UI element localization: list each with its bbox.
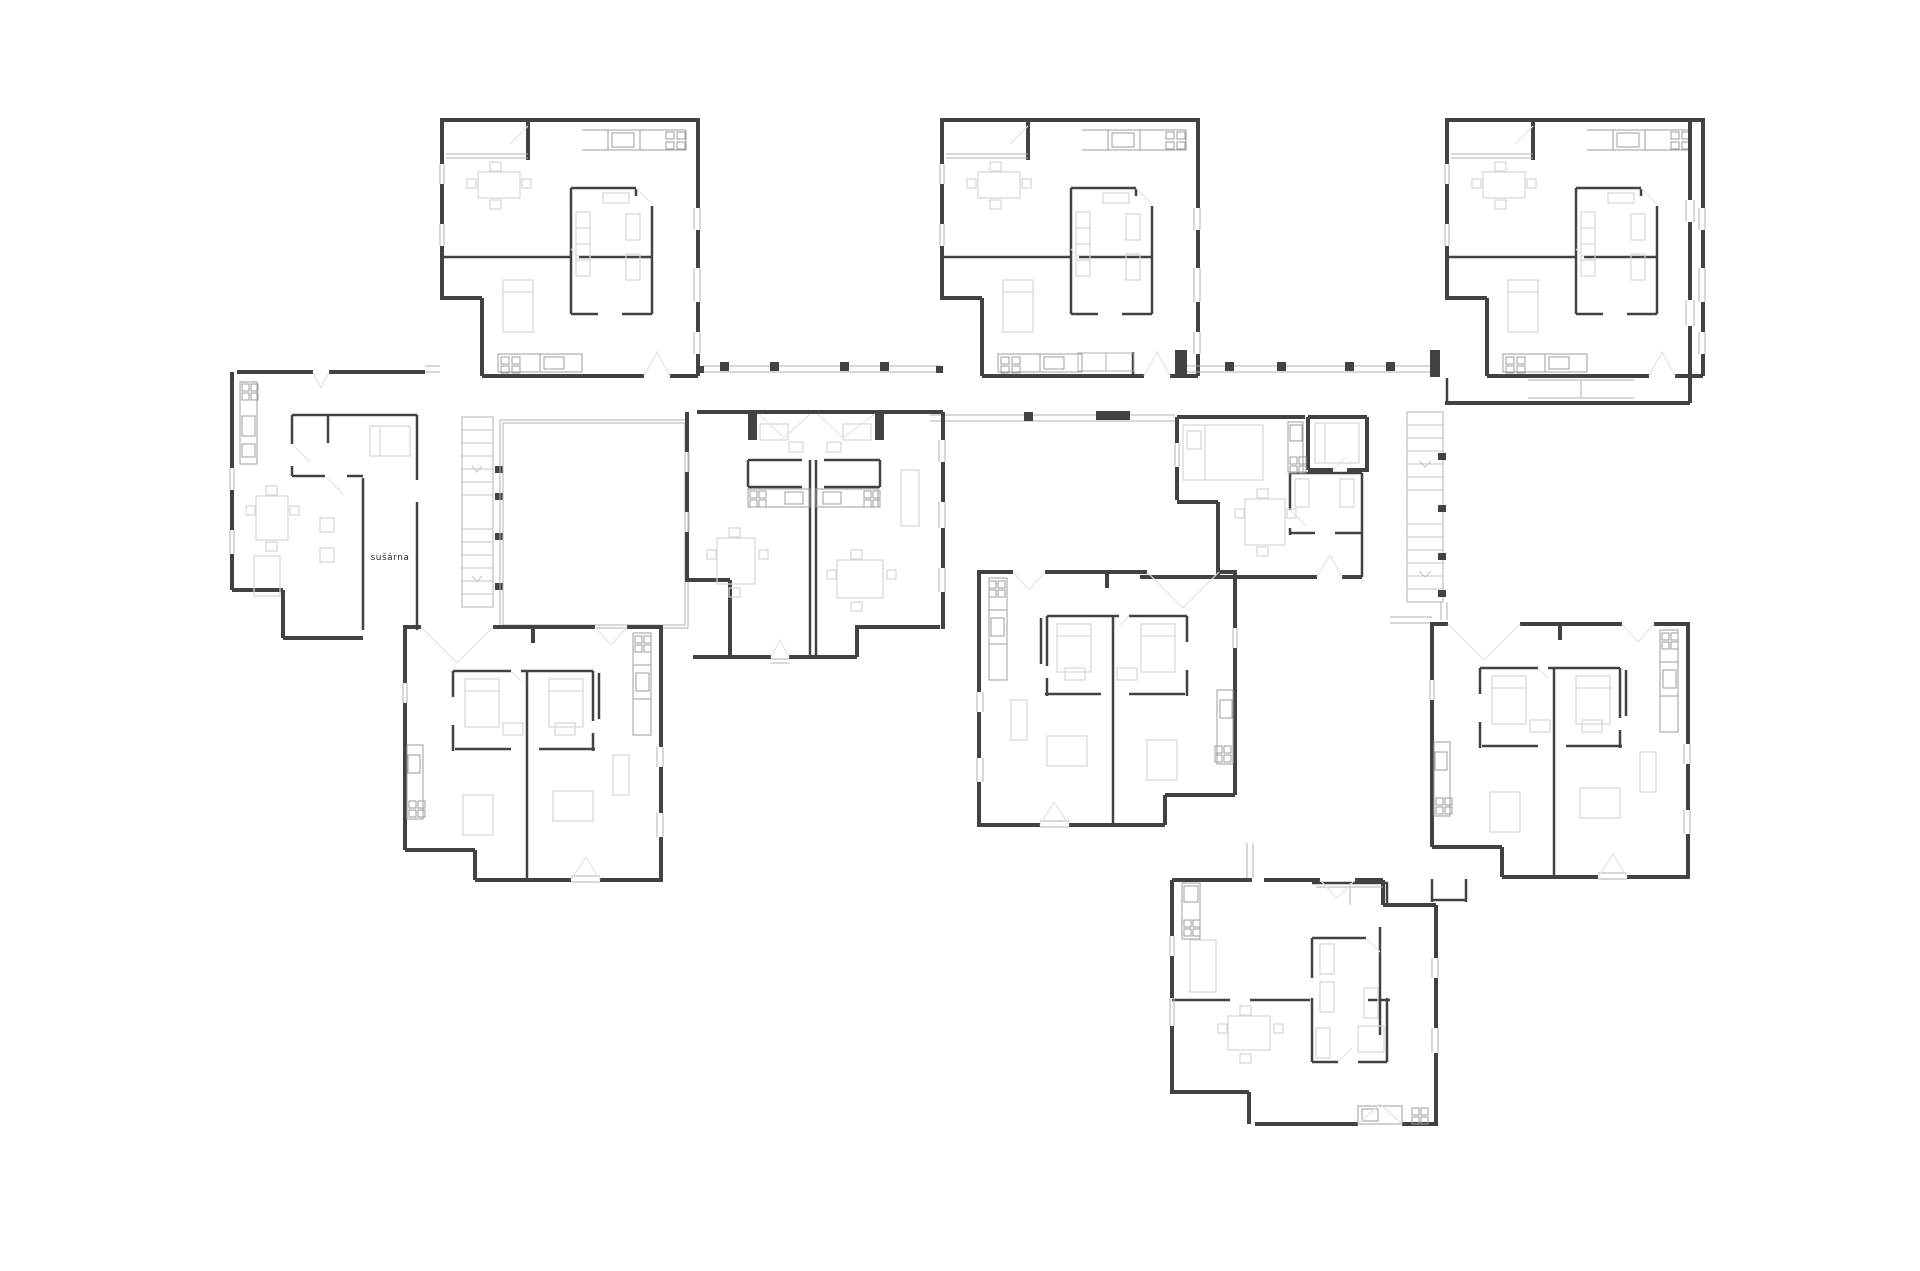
apartment-module [440, 120, 700, 376]
floor-plan-canvas: sušárna [0, 0, 1920, 1271]
link-south [1247, 843, 1253, 878]
unit-top-middle [940, 120, 1200, 377]
unit-lower-middle [977, 572, 1237, 827]
apartment-module [1445, 120, 1705, 376]
apartment-module [1430, 624, 1690, 879]
apartment-module [940, 120, 1200, 376]
unit-top-left [440, 120, 700, 376]
unit-lower-west [403, 627, 663, 882]
unit-west: sušárna [230, 372, 425, 638]
stair-west [462, 417, 503, 607]
unit-top-right [1445, 120, 1705, 403]
unit-lower-east [1430, 624, 1690, 902]
apartment-module [977, 572, 1237, 827]
yard-wall [1432, 879, 1466, 902]
unit-south [1170, 880, 1438, 1126]
gallery-center [930, 411, 1175, 421]
link-east [1390, 602, 1447, 623]
drying-room-label: sušárna [371, 552, 410, 563]
stair-east [1407, 412, 1446, 602]
gallery-top-east [1175, 350, 1440, 377]
apartment-module [403, 627, 663, 882]
unit-center-double [685, 412, 945, 663]
terrace-enclosure-wall [1445, 120, 1690, 403]
courtyard-west [500, 420, 688, 628]
unit-center-east [1140, 417, 1367, 577]
terrace-glazing [1528, 200, 1694, 398]
drawing-sheet: sušárna [0, 0, 1920, 1271]
